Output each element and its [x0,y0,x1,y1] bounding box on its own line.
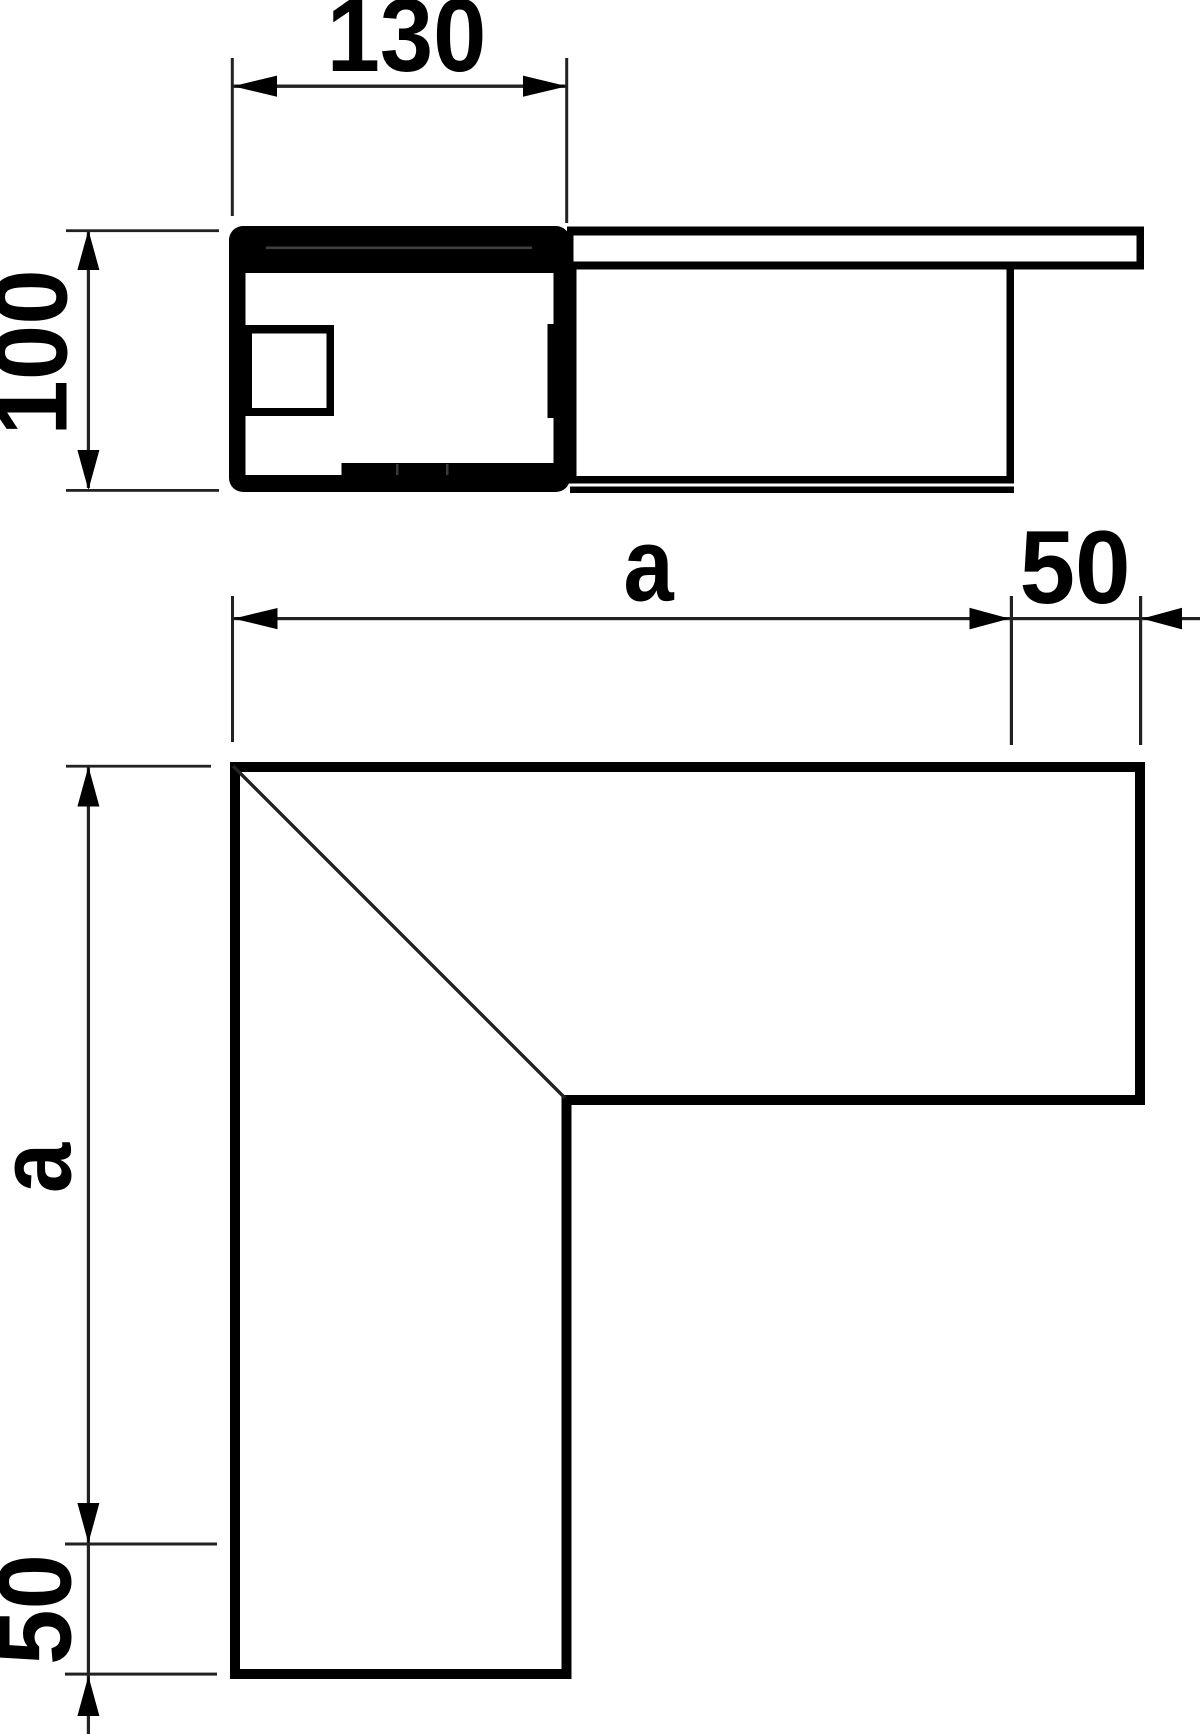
svg-text:a: a [623,507,674,623]
svg-text:100: 100 [0,269,89,436]
svg-text:a: a [0,1142,93,1193]
svg-text:130: 130 [327,0,487,94]
svg-text:50: 50 [1019,509,1130,625]
svg-text:50: 50 [0,1554,93,1665]
